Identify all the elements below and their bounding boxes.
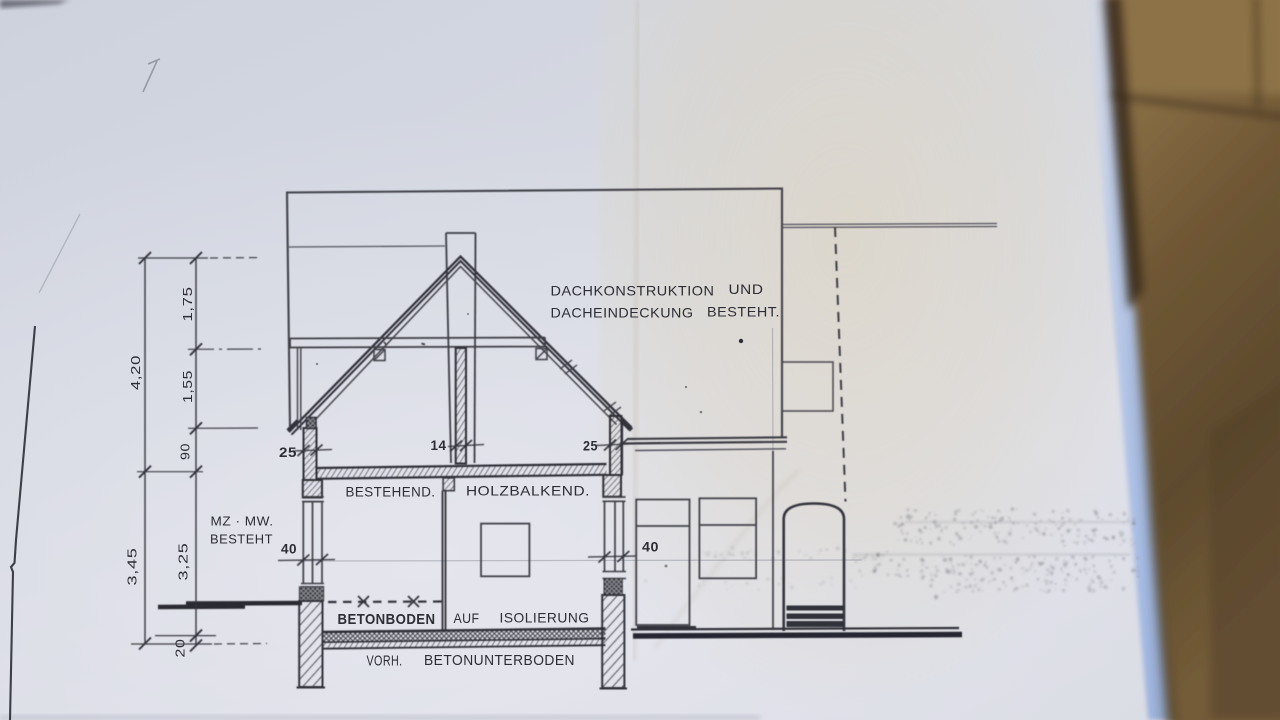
svg-text:1,55: 1,55 [180,370,195,403]
svg-text:25: 25 [279,444,297,460]
svg-text:14: 14 [431,438,447,453]
svg-text:BESTEHEND.: BESTEHEND. [346,484,436,500]
svg-text:20: 20 [173,639,188,658]
svg-text:BETONUNTERBODEN: BETONUNTERBODEN [424,653,575,669]
svg-text:4,20: 4,20 [128,355,143,390]
svg-text:3,45: 3,45 [125,548,140,586]
svg-text:HOLZBALKEND.: HOLZBALKEND. [466,482,590,498]
svg-text:AUF: AUF [454,610,480,626]
svg-text:BESTEHT.: BESTEHT. [707,304,780,320]
svg-text:1,75: 1,75 [180,287,195,322]
svg-text:BETONBODEN: BETONBODEN [338,611,436,628]
svg-text:DACHKONSTRUKTION: DACHKONSTRUKTION [551,283,715,299]
svg-text:MZ · MW.: MZ · MW. [211,514,274,529]
svg-text:BESTEHT: BESTEHT [210,532,273,547]
svg-text:UND: UND [729,281,764,297]
svg-text:90: 90 [178,443,193,460]
svg-text:25: 25 [583,439,598,454]
svg-text:40: 40 [281,542,297,557]
svg-text:VORH.: VORH. [367,654,403,670]
svg-text:DACHEINDECKUNG: DACHEINDECKUNG [551,305,694,321]
svg-text:3,25: 3,25 [176,543,191,581]
svg-text:ISOLIERUNG: ISOLIERUNG [500,610,590,626]
svg-text:40: 40 [642,540,659,555]
